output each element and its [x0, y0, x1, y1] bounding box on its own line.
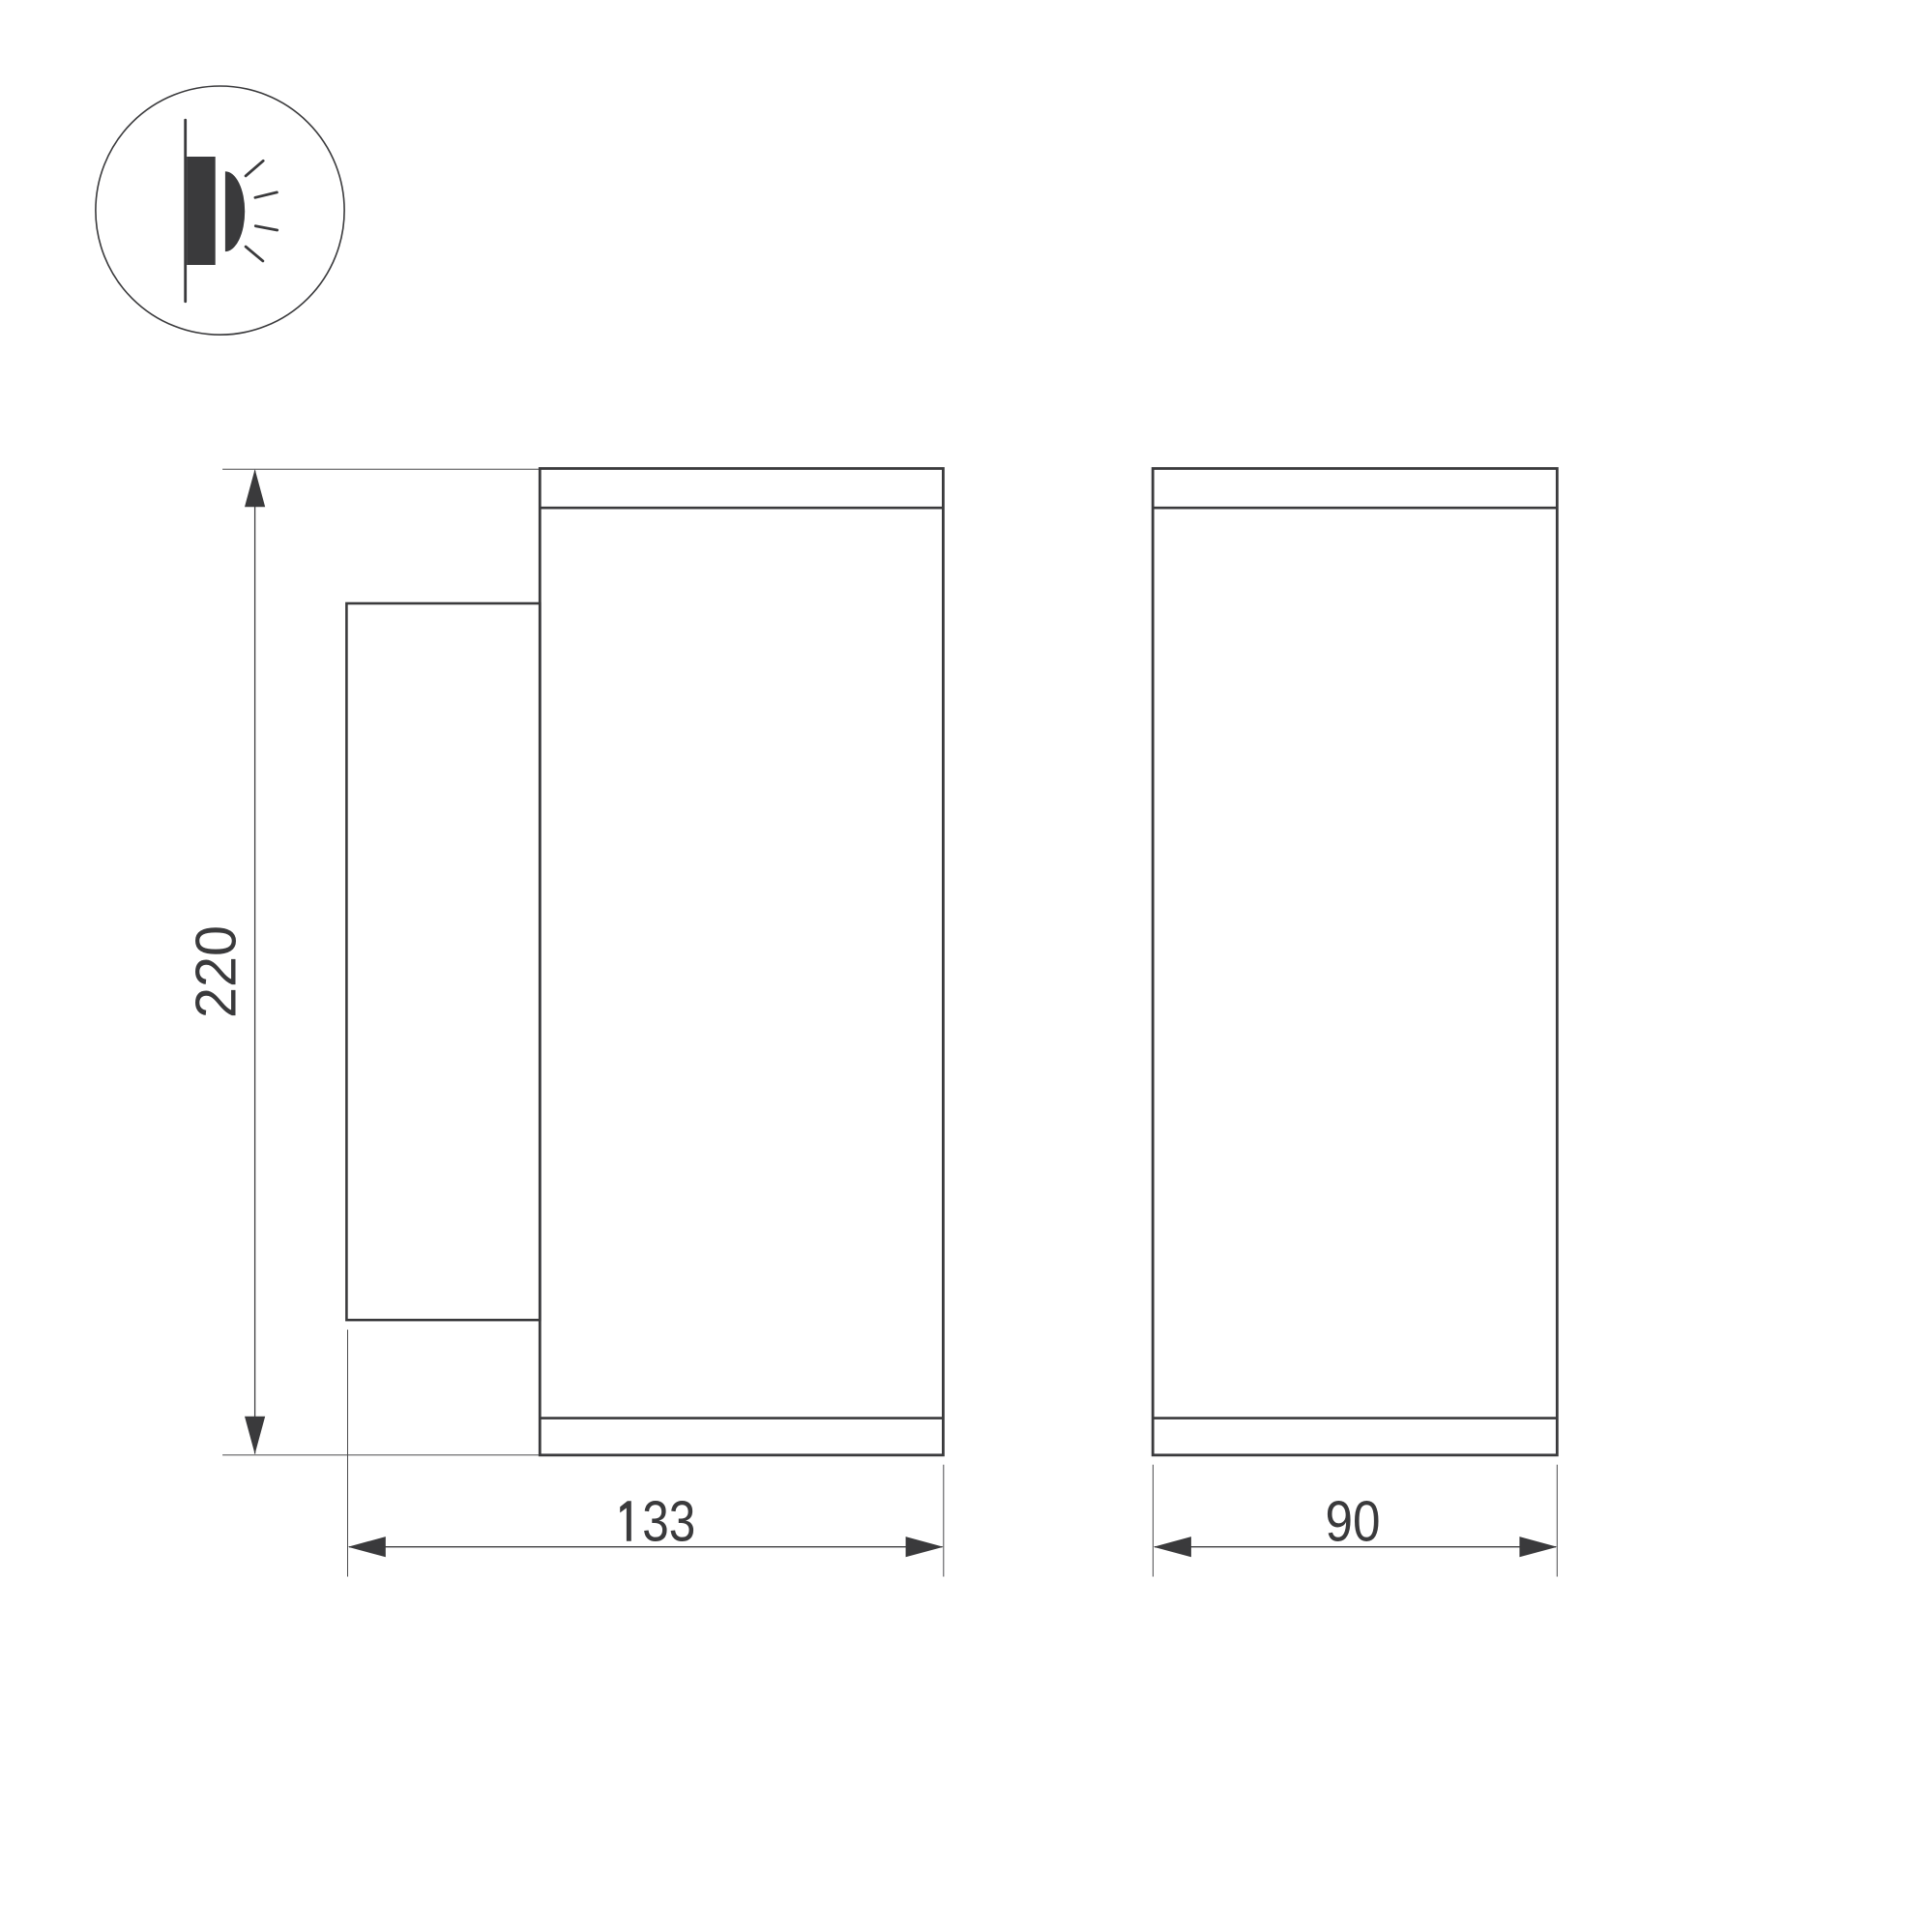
svg-text:33: 33 — [642, 1490, 695, 1554]
svg-text:220: 220 — [185, 925, 249, 1018]
svg-text:90: 90 — [1326, 1490, 1381, 1554]
